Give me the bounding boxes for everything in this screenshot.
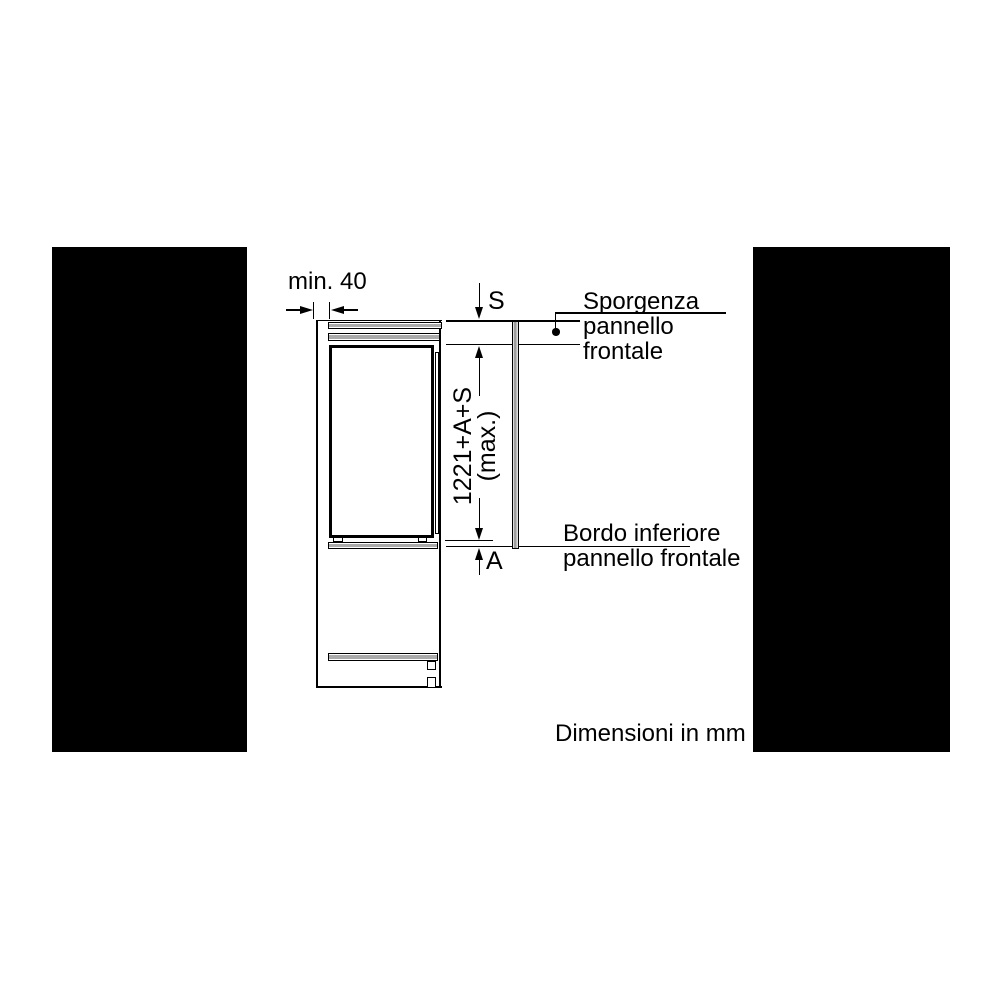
right-black-mask: [753, 247, 950, 752]
panel-height-value: 1221+A+S: [452, 326, 476, 566]
top-board-lower: [328, 333, 440, 341]
door-side-strip: [435, 352, 440, 534]
height-dim-lower-shaft: [479, 498, 480, 529]
min40-left-arrowhead: [300, 306, 313, 314]
bordo-line-2: pannello frontale: [563, 546, 740, 571]
bordo-line-1: Bordo inferiore: [563, 521, 740, 546]
min40-label: min. 40: [288, 270, 367, 294]
sporgenza-label: Sporgenza pannello frontale: [583, 289, 699, 364]
s-arrowhead: [475, 307, 483, 319]
appliance-door: [329, 345, 434, 538]
lower-shelf-board: [328, 653, 439, 661]
cabinet-left-wall: [316, 320, 318, 688]
a-label: A: [486, 549, 503, 574]
height-dim-lower-arrowhead: [475, 528, 483, 540]
min40-right-arrow-shaft: [342, 309, 358, 310]
front-panel: [512, 321, 518, 549]
cabinet-right-wall: [439, 320, 441, 688]
sporgenza-line-3: frontale: [583, 339, 699, 364]
bordo-label: Bordo inferiore pannello frontale: [563, 521, 740, 571]
sporgenza-line-1: Sporgenza: [583, 289, 699, 314]
door-foot-left: [333, 537, 343, 543]
dimension-diagram: min. 40 S 1221+A+S (max.) A Sporgenza pa…: [0, 0, 1000, 1000]
left-black-mask: [52, 247, 247, 752]
top-board-upper: [328, 322, 443, 330]
sporgenza-leader-dot: [552, 328, 559, 335]
units-note: Dimensioni in mm: [555, 722, 746, 746]
upper-mounting-clip: [427, 661, 436, 670]
sporgenza-line-2: pannello: [583, 314, 699, 339]
min40-tick-left: [313, 302, 314, 319]
s-arrow-shaft: [479, 283, 480, 309]
lower-mounting-clip: [427, 677, 436, 688]
bottom-trim-board: [328, 542, 439, 549]
s-label: S: [488, 289, 505, 314]
a-arrow-shaft: [479, 559, 480, 575]
cabinet-bottom-edge: [316, 686, 442, 688]
door-foot-right: [418, 537, 427, 543]
